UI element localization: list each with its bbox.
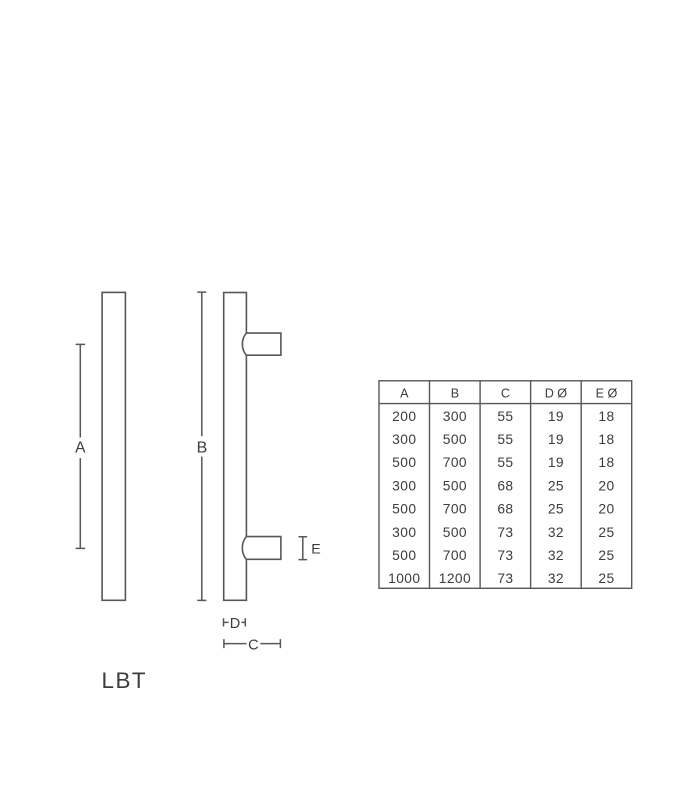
svg-text:55: 55 — [497, 409, 513, 424]
svg-text:300: 300 — [392, 525, 416, 540]
svg-text:500: 500 — [392, 455, 416, 470]
svg-text:200: 200 — [392, 409, 416, 424]
svg-text:E: E — [311, 542, 320, 558]
svg-text:20: 20 — [598, 478, 614, 493]
svg-text:18: 18 — [598, 409, 614, 424]
svg-text:500: 500 — [443, 478, 467, 493]
svg-text:B: B — [197, 440, 208, 457]
svg-text:500: 500 — [443, 432, 467, 447]
svg-text:25: 25 — [548, 502, 564, 517]
svg-text:700: 700 — [443, 455, 467, 470]
svg-text:300: 300 — [392, 478, 416, 493]
svg-text:A: A — [400, 387, 409, 401]
svg-text:73: 73 — [497, 571, 513, 586]
svg-text:A: A — [75, 440, 86, 457]
svg-text:C: C — [248, 637, 258, 653]
svg-text:73: 73 — [497, 548, 513, 563]
svg-text:B: B — [451, 387, 459, 401]
svg-text:25: 25 — [598, 571, 614, 586]
svg-text:68: 68 — [497, 502, 513, 517]
svg-text:19: 19 — [548, 432, 564, 447]
svg-text:19: 19 — [548, 409, 564, 424]
svg-text:20: 20 — [598, 502, 614, 517]
svg-text:25: 25 — [598, 525, 614, 540]
svg-text:LBT: LBT — [102, 668, 148, 693]
svg-text:25: 25 — [598, 548, 614, 563]
svg-text:73: 73 — [497, 525, 513, 540]
svg-text:C: C — [501, 387, 510, 401]
svg-text:300: 300 — [443, 409, 467, 424]
svg-text:32: 32 — [548, 571, 564, 586]
svg-text:300: 300 — [392, 432, 416, 447]
svg-text:25: 25 — [548, 478, 564, 493]
svg-text:500: 500 — [392, 548, 416, 563]
svg-text:55: 55 — [497, 455, 513, 470]
svg-text:700: 700 — [443, 502, 467, 517]
svg-text:D Ø: D Ø — [545, 387, 568, 401]
svg-text:D: D — [230, 616, 240, 632]
svg-text:32: 32 — [548, 525, 564, 540]
svg-text:E Ø: E Ø — [596, 387, 618, 401]
svg-text:18: 18 — [598, 455, 614, 470]
svg-text:700: 700 — [443, 548, 467, 563]
svg-text:1200: 1200 — [439, 571, 471, 586]
svg-text:55: 55 — [497, 432, 513, 447]
svg-text:500: 500 — [392, 502, 416, 517]
svg-text:18: 18 — [598, 432, 614, 447]
svg-text:1000: 1000 — [388, 571, 420, 586]
svg-text:19: 19 — [548, 455, 564, 470]
svg-text:32: 32 — [548, 548, 564, 563]
svg-text:68: 68 — [497, 478, 513, 493]
svg-text:500: 500 — [443, 525, 467, 540]
